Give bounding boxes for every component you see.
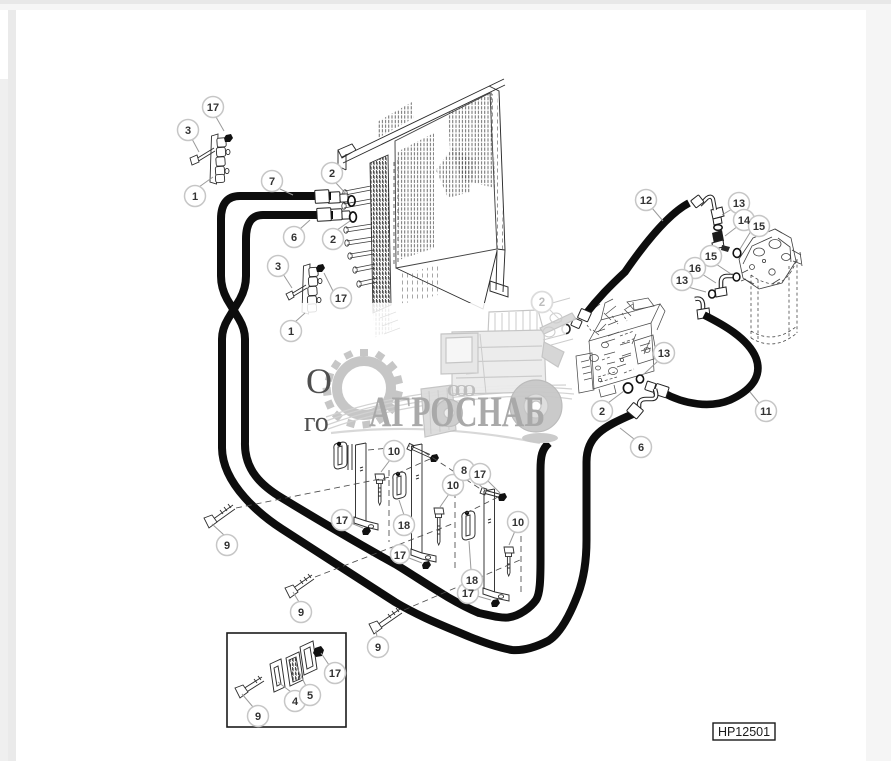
svg-text:3: 3 [185, 125, 191, 137]
svg-text:9: 9 [375, 642, 381, 654]
svg-text:3: 3 [275, 261, 281, 273]
svg-text:2: 2 [599, 406, 605, 418]
svg-text:16: 16 [689, 263, 701, 275]
svg-text:9: 9 [298, 607, 304, 619]
svg-text:1: 1 [192, 191, 198, 203]
svg-text:15: 15 [705, 251, 717, 263]
svg-text:10: 10 [447, 480, 459, 492]
svg-text:4: 4 [292, 696, 299, 708]
svg-text:9: 9 [224, 540, 230, 552]
svg-text:6: 6 [638, 442, 644, 454]
svg-text:2: 2 [329, 168, 335, 180]
svg-text:17: 17 [394, 550, 406, 562]
svg-text:17: 17 [207, 102, 219, 114]
svg-text:15: 15 [753, 221, 765, 233]
svg-text:17: 17 [462, 588, 474, 600]
svg-text:2: 2 [330, 234, 336, 246]
svg-text:2: 2 [539, 297, 545, 309]
svg-text:О: О [306, 361, 332, 401]
svg-text:17: 17 [474, 469, 486, 481]
svg-text:13: 13 [676, 275, 688, 287]
svg-text:17: 17 [335, 293, 347, 305]
svg-text:17: 17 [336, 515, 348, 527]
svg-text:6: 6 [291, 232, 297, 244]
svg-text:13: 13 [733, 198, 745, 210]
svg-text:HP12501: HP12501 [718, 725, 770, 739]
svg-text:11: 11 [760, 406, 772, 418]
svg-text:13: 13 [658, 348, 670, 360]
svg-text:10: 10 [388, 446, 400, 458]
svg-text:12: 12 [640, 195, 652, 207]
svg-text:8: 8 [461, 465, 467, 477]
svg-text:5: 5 [307, 690, 313, 702]
svg-text:18: 18 [466, 575, 478, 587]
svg-text:7: 7 [269, 176, 275, 188]
svg-text:1: 1 [288, 326, 294, 338]
svg-text:АГРОСНАБ: АГРОСНАБ [369, 389, 545, 436]
svg-text:17: 17 [329, 668, 341, 680]
svg-text:10: 10 [512, 517, 524, 529]
svg-text:9: 9 [255, 711, 261, 723]
svg-text:го: го [304, 407, 329, 438]
svg-text:18: 18 [398, 520, 410, 532]
svg-text:14: 14 [738, 215, 751, 227]
